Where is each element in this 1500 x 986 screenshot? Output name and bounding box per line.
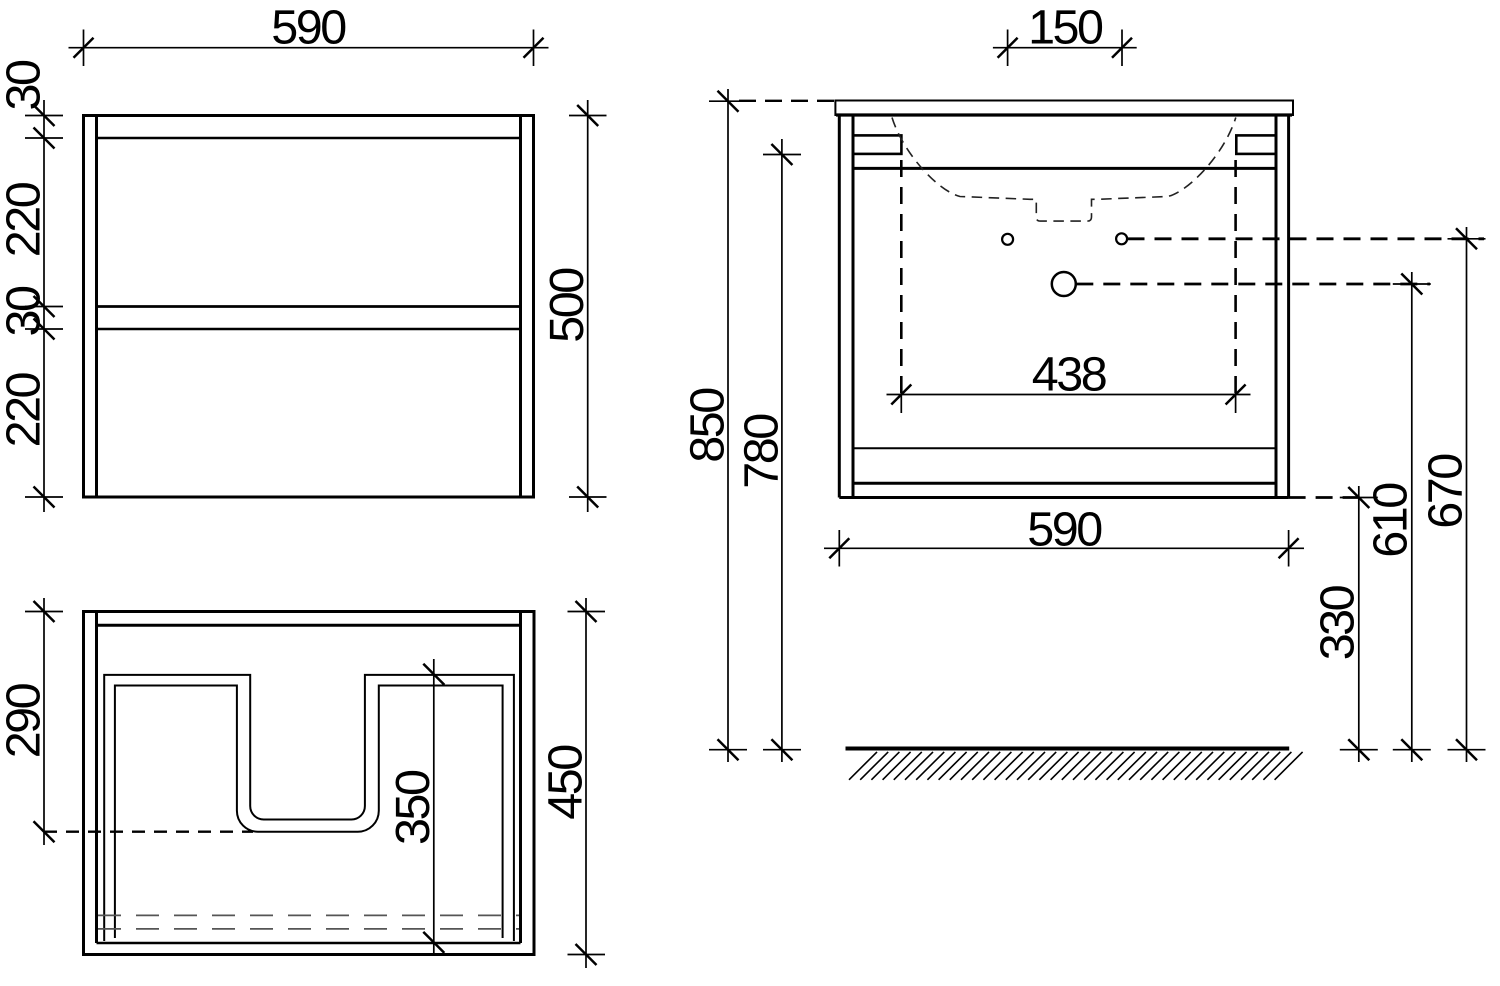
- svg-text:350: 350: [386, 770, 440, 845]
- svg-text:670: 670: [1418, 454, 1472, 529]
- svg-text:290: 290: [0, 683, 51, 758]
- svg-text:450: 450: [539, 745, 593, 820]
- svg-text:610: 610: [1364, 483, 1418, 558]
- svg-text:438: 438: [1032, 348, 1106, 402]
- svg-text:150: 150: [1028, 0, 1103, 54]
- svg-text:590: 590: [271, 0, 346, 54]
- svg-text:30: 30: [0, 60, 51, 110]
- svg-text:590: 590: [1027, 503, 1102, 557]
- svg-text:500: 500: [540, 268, 594, 343]
- svg-text:850: 850: [681, 388, 735, 463]
- svg-text:330: 330: [1311, 585, 1365, 660]
- svg-text:30: 30: [0, 286, 51, 336]
- svg-text:220: 220: [0, 372, 51, 447]
- svg-text:780: 780: [734, 414, 788, 489]
- svg-text:220: 220: [0, 182, 51, 257]
